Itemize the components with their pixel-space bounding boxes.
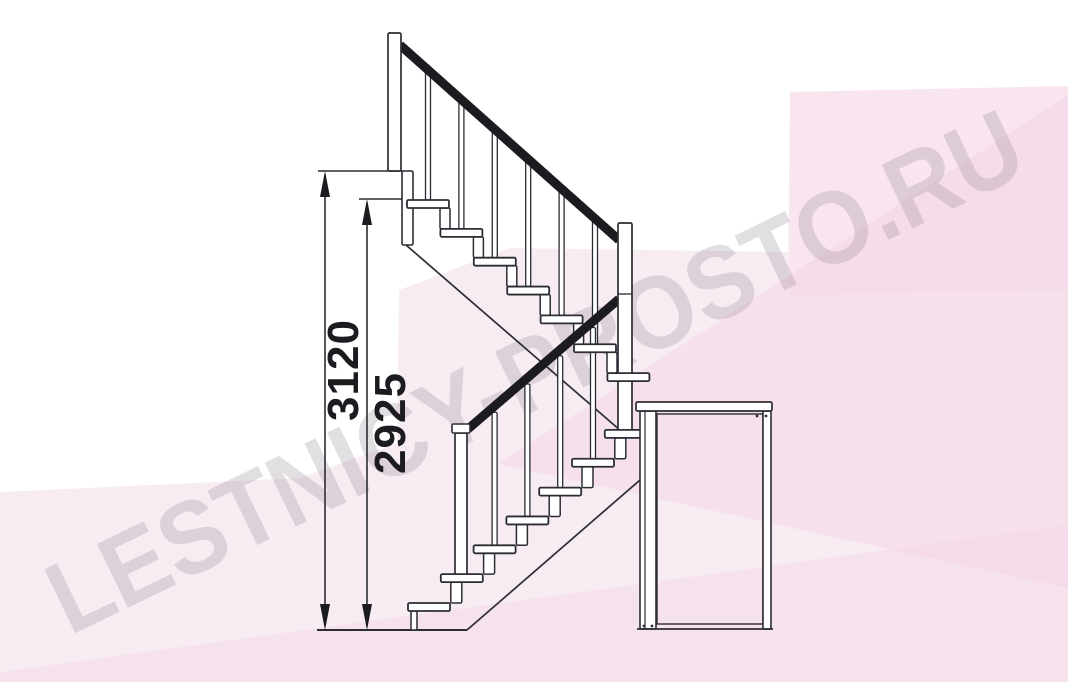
landing-newel-post <box>388 33 401 171</box>
upper-baluster <box>426 72 431 200</box>
bottom-newel-cap <box>452 424 470 433</box>
lower-flight-tread <box>506 516 548 524</box>
lower-baluster <box>525 384 530 516</box>
lower-step-connector <box>516 524 527 545</box>
lower-step-connector <box>484 553 495 574</box>
dimension-arrow-up-1 <box>362 199 372 225</box>
upper-flight-tread <box>507 287 549 295</box>
lower-step-connector <box>451 582 462 603</box>
lower-flight-tread <box>474 545 516 553</box>
upper-baluster <box>559 191 564 316</box>
bottom-newel-post <box>455 433 467 576</box>
lower-flight-tread <box>539 488 581 496</box>
upper-flight-tread <box>607 373 649 381</box>
upper-baluster <box>459 101 464 228</box>
upper-handrail <box>400 45 619 240</box>
platform-frame-inner <box>657 414 763 624</box>
dimension-arrow-up-0 <box>320 171 330 197</box>
upper-step-connector <box>440 208 450 229</box>
upper-step-connector <box>507 266 517 287</box>
lower-step-connector <box>582 467 593 488</box>
platform-frame-right-leg <box>763 411 771 629</box>
upper-flight-tread <box>407 200 449 208</box>
platform-frame-left-leg <box>640 411 656 629</box>
upper-flight-tread <box>574 344 616 352</box>
dimension-arrow-down-0 <box>320 604 330 630</box>
upper-flight-tread <box>541 315 583 323</box>
dimension-label-rail-height: 2925 <box>369 372 413 474</box>
upper-baluster <box>492 131 497 258</box>
lower-flight-tread <box>572 459 614 467</box>
upper-baluster <box>526 161 531 287</box>
platform-newel-post <box>618 223 632 430</box>
upper-step-connector <box>473 237 483 258</box>
dimension-label-total-height: 3120 <box>322 319 366 421</box>
lower-flight-floor-support <box>411 611 417 630</box>
platform-top-plate <box>636 402 772 411</box>
lower-baluster <box>492 412 497 545</box>
lower-step-connector <box>549 496 560 517</box>
platform-fastener-dot <box>756 415 759 418</box>
lower-flight-tread <box>441 574 483 582</box>
dimension-arrow-down-1 <box>362 604 372 630</box>
platform-fastener-dot <box>765 415 768 418</box>
staircase-drawing <box>0 0 1068 682</box>
lower-step-connector <box>615 438 626 459</box>
upper-flight-tread <box>474 258 516 266</box>
stair-drawing-canvas: LESTNICY-PROSTO.RU 3120 2925 <box>0 0 1068 682</box>
lower-flight-tread <box>408 603 450 611</box>
upper-step-connector <box>607 352 617 373</box>
lower-baluster <box>558 356 563 488</box>
platform-fastener-dot <box>651 625 654 628</box>
upper-flight-tread <box>440 229 482 237</box>
platform-fastener-dot <box>643 625 646 628</box>
upper-step-connector <box>540 295 550 316</box>
